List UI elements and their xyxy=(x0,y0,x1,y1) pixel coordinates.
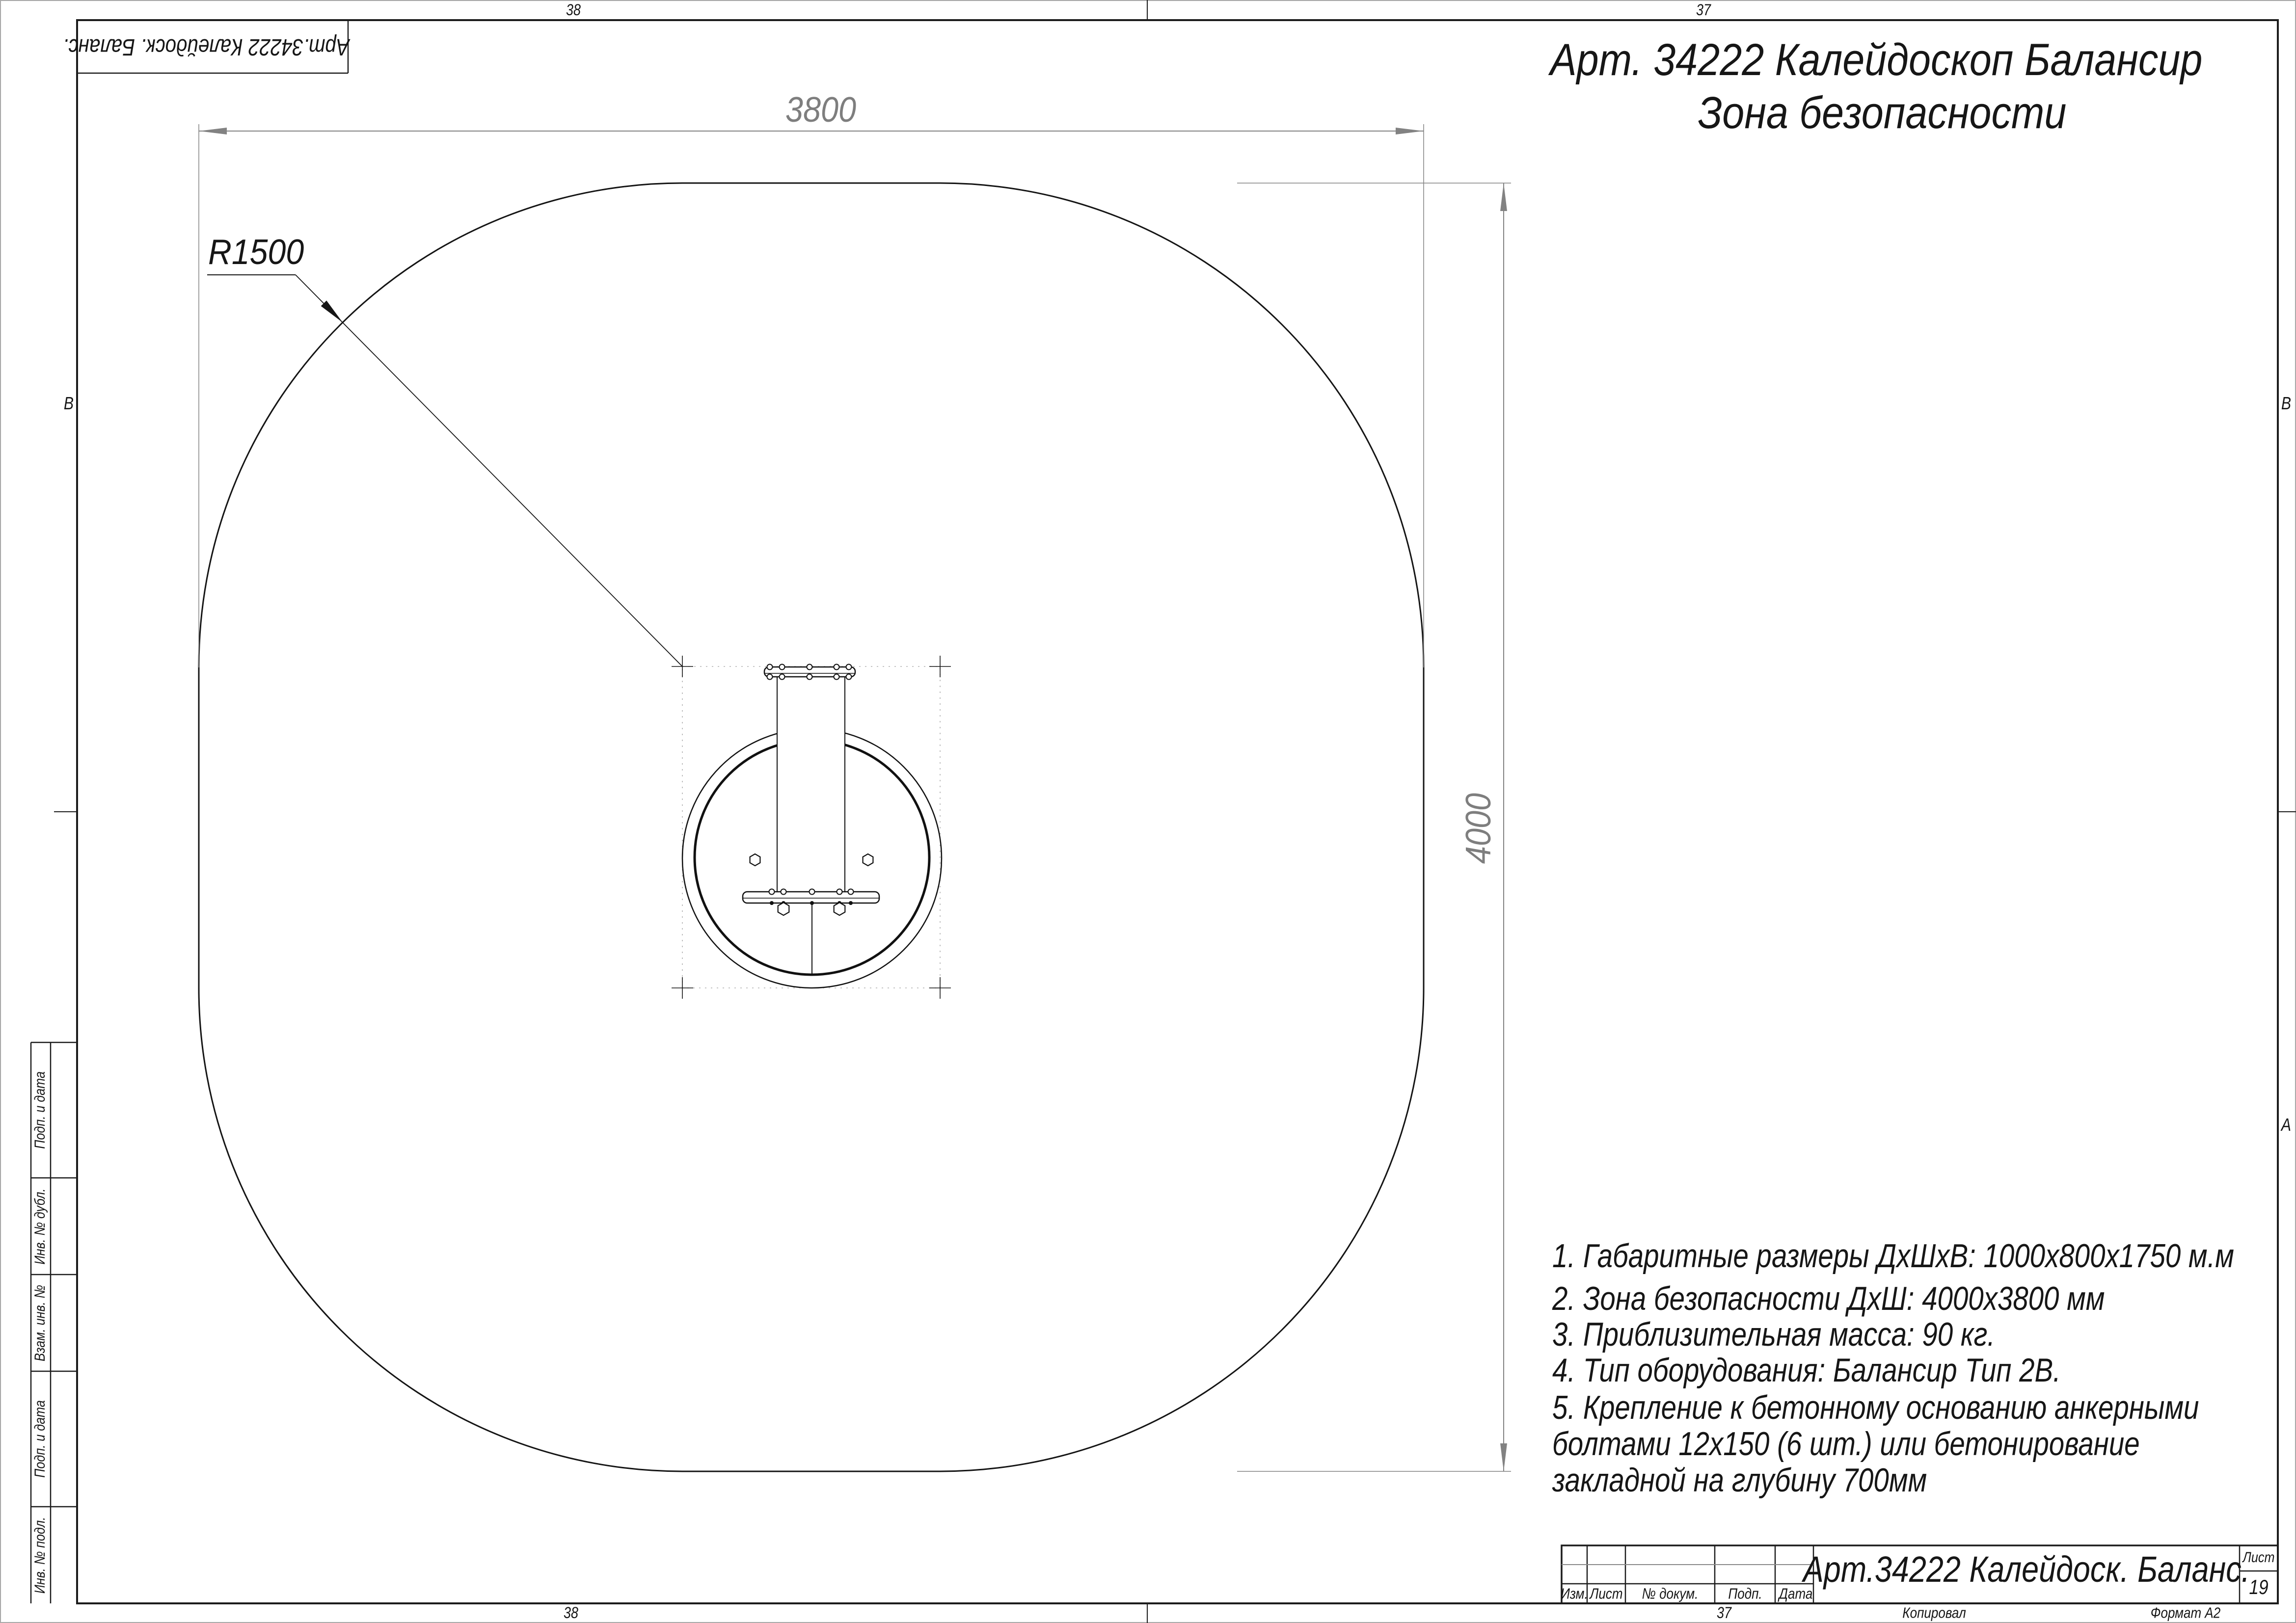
zone-number-bottom-left: 38 xyxy=(562,1605,580,1621)
note-line-2: 2. Зона безопасности ДхШ: 4000х3800 мм xyxy=(1552,1282,2218,1315)
dim-width-label: 3800 xyxy=(782,92,860,128)
corner-stamp-text: Арт.34222 Калейдоск. Баланс. xyxy=(36,35,377,58)
width-dimension xyxy=(199,124,1424,667)
radius-label: R1500 xyxy=(208,235,312,270)
tb-col-podp: Подп. xyxy=(1725,1586,1766,1601)
zone-number-top-right: 37 xyxy=(1695,2,1712,18)
note-line-7: закладной на глубину 700мм xyxy=(1552,1463,2004,1497)
dim-height-label: 4000 xyxy=(1461,789,1496,868)
tb-designation: Арт.34222 Калейдоск. Баланс. xyxy=(1764,1551,2290,1588)
tb-col-dokum: № докум. xyxy=(1637,1586,1704,1601)
side-stamp-vzam-inv: Взам. инв. № xyxy=(33,1277,48,1369)
side-stamp-podp-data-1: Подп. и дата xyxy=(33,1064,48,1156)
page-title-line2: Зона безопасности xyxy=(1673,90,2091,135)
tb-sheet-label: Лист xyxy=(2240,1550,2277,1565)
footer-copied-label: Копировал xyxy=(1896,1605,1972,1621)
side-stamp-inv-podl: Инв. № подл. xyxy=(33,1510,48,1601)
drawing-sheet: Арт. 34222 Калейдоскоп Балансир Зона без… xyxy=(0,0,2296,1623)
zone-number-top-left: 38 xyxy=(565,2,582,18)
tb-col-izm: Изм. xyxy=(1558,1586,1591,1601)
note-line-6: болтами 12х150 (6 шт.) или бетонирование xyxy=(1552,1427,2260,1461)
page-title-line1: Арт. 34222 Калейдоскоп Балансир xyxy=(1506,37,2247,82)
nut-left xyxy=(778,903,789,915)
radius-leader xyxy=(207,275,682,666)
note-line-1: 1. Габаритные размеры ДхШхВ: 1000х800х17… xyxy=(1552,1239,2296,1273)
note-line-3: 3. Приблизительная масса: 90 кг. xyxy=(1552,1318,2086,1351)
zone-letter-left-b: В xyxy=(63,395,75,412)
side-stamp-podp-data-2: Подп. и дата xyxy=(33,1393,48,1485)
note-line-5: 5. Крепление к бетонному основанию анкер… xyxy=(1552,1391,2296,1424)
nut-right xyxy=(834,903,845,915)
tb-sheet-number: 19 xyxy=(2247,1577,2270,1597)
zone-letter-right-b: В xyxy=(2280,395,2292,412)
side-stamp-inv-dubl: Инв. № дубл. xyxy=(33,1181,48,1272)
tb-col-list: Лист xyxy=(1587,1586,1626,1601)
lower-flange-bolts xyxy=(769,889,854,895)
equipment-beam xyxy=(777,676,845,893)
footer-format-label: Формат А2 xyxy=(2144,1605,2227,1621)
anchor-bolt-right xyxy=(863,854,873,866)
zone-number-bottom-right: 37 xyxy=(1715,1605,1733,1621)
equipment-top-view xyxy=(682,665,942,988)
anchor-bolt-left xyxy=(750,854,760,866)
note-line-4: 4. Тип оборудования: Балансир Тип 2В. xyxy=(1552,1354,2165,1387)
zone-letter-right-a: А xyxy=(2280,1116,2292,1134)
